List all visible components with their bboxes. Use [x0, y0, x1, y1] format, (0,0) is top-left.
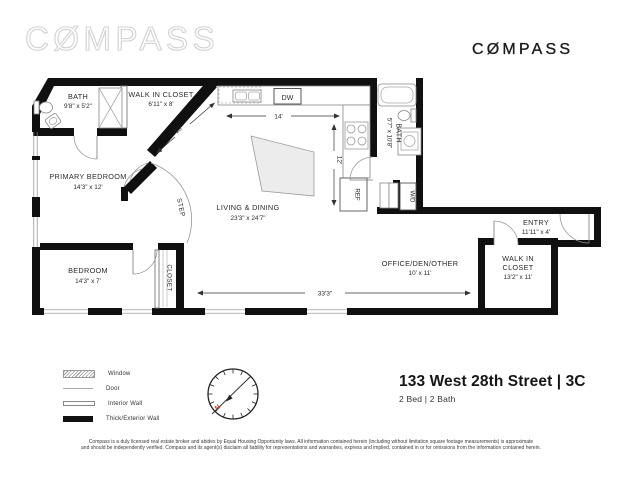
washer-dryer: W/D: [380, 183, 416, 210]
title-block: 133 West 28th Street | 3C 2 Bed | 2 Bath: [399, 373, 586, 404]
room-label-bedroom: BEDROOM: [68, 266, 108, 275]
thick-wall-swatch-icon: [63, 416, 93, 422]
room-dims-entry: 11'11" x 4': [522, 229, 550, 236]
room-dims-living-dining: 23'3" x 24'7": [230, 215, 265, 222]
dim-kitchen-depth: 12': [336, 156, 343, 165]
room-label-bath-2: BATH: [395, 123, 402, 142]
dim-kitchen-width: 14': [274, 114, 283, 121]
legend-row-door: Door: [63, 381, 160, 396]
dim-south-wall: 33'3": [318, 291, 333, 298]
room-dims-walk-in-closet-2: 13'2" x 11': [504, 274, 533, 281]
dishwasher-label: DW: [282, 95, 294, 102]
step-label: STEP: [175, 198, 186, 218]
legend-row-window: Window: [63, 366, 160, 381]
room-label-walk-in-closet-1: WALK IN CLOSET: [128, 90, 193, 99]
room-label-walk-in-closet-2-line2: CLOSET: [503, 263, 534, 272]
room-label-living-dining: LIVING & DINING: [217, 203, 280, 212]
disclaimer-line-2: and should be independently verified. Co…: [21, 445, 601, 451]
legend-label-interior-wall: Interior Wall: [108, 401, 142, 407]
room-dims-bath-1: 9'8" x 5'2": [64, 103, 92, 110]
closet-label: CLOSET: [166, 264, 173, 291]
room-label-primary-bedroom: PRIMARY BEDROOM: [49, 172, 126, 181]
compass-rose-icon: N: [204, 365, 262, 423]
legend-label-thick-wall: Thick/Exterior Wall: [106, 416, 160, 422]
washer-dryer-label: W/D: [409, 190, 416, 203]
room-label-entry: ENTRY: [523, 218, 549, 227]
disclaimer: Compass is a duly licensed real estate b…: [21, 439, 601, 451]
interior-wall-swatch-icon: [63, 401, 95, 406]
legend-row-interior-wall: Interior Wall: [63, 396, 160, 411]
refrigerator: REF: [340, 178, 367, 211]
floorplan-page: CØMPASS CØMPASS: [0, 0, 622, 481]
room-dims-walk-in-closet-1: 6'11" x 8': [148, 101, 173, 108]
room-dims-bath-2: 5'7" x 10'8": [386, 118, 393, 149]
room-dims-office-den: 10' x 11': [409, 270, 432, 277]
dishwasher: DW: [274, 89, 301, 105]
room-dims-bedroom: 14'3" x 7': [75, 278, 101, 285]
door-swatch-icon: [63, 388, 93, 389]
kitchen-island: [251, 136, 314, 196]
legend-label-window: Window: [108, 371, 131, 377]
address-title: 133 West 28th Street | 3C: [399, 373, 586, 391]
room-label-walk-in-closet-2-line1: WALK IN: [502, 254, 534, 263]
bath-2-fixtures: [378, 84, 421, 155]
legend-row-thick-wall: Thick/Exterior Wall: [63, 411, 160, 426]
step-curve: [151, 163, 192, 243]
room-label-office-den: OFFICE/DEN/OTHER: [382, 259, 459, 268]
window-swatch-icon: [63, 370, 95, 378]
room-label-bath-1: BATH: [68, 92, 88, 101]
legend: Window Door Interior Wall Thick/Exterior…: [63, 366, 160, 426]
room-dims-primary-bedroom: 14'3" x 12': [73, 184, 102, 191]
bed-bath-specs: 2 Bed | 2 Bath: [399, 394, 586, 404]
refrigerator-label: REF: [354, 188, 361, 201]
legend-label-door: Door: [106, 386, 120, 392]
